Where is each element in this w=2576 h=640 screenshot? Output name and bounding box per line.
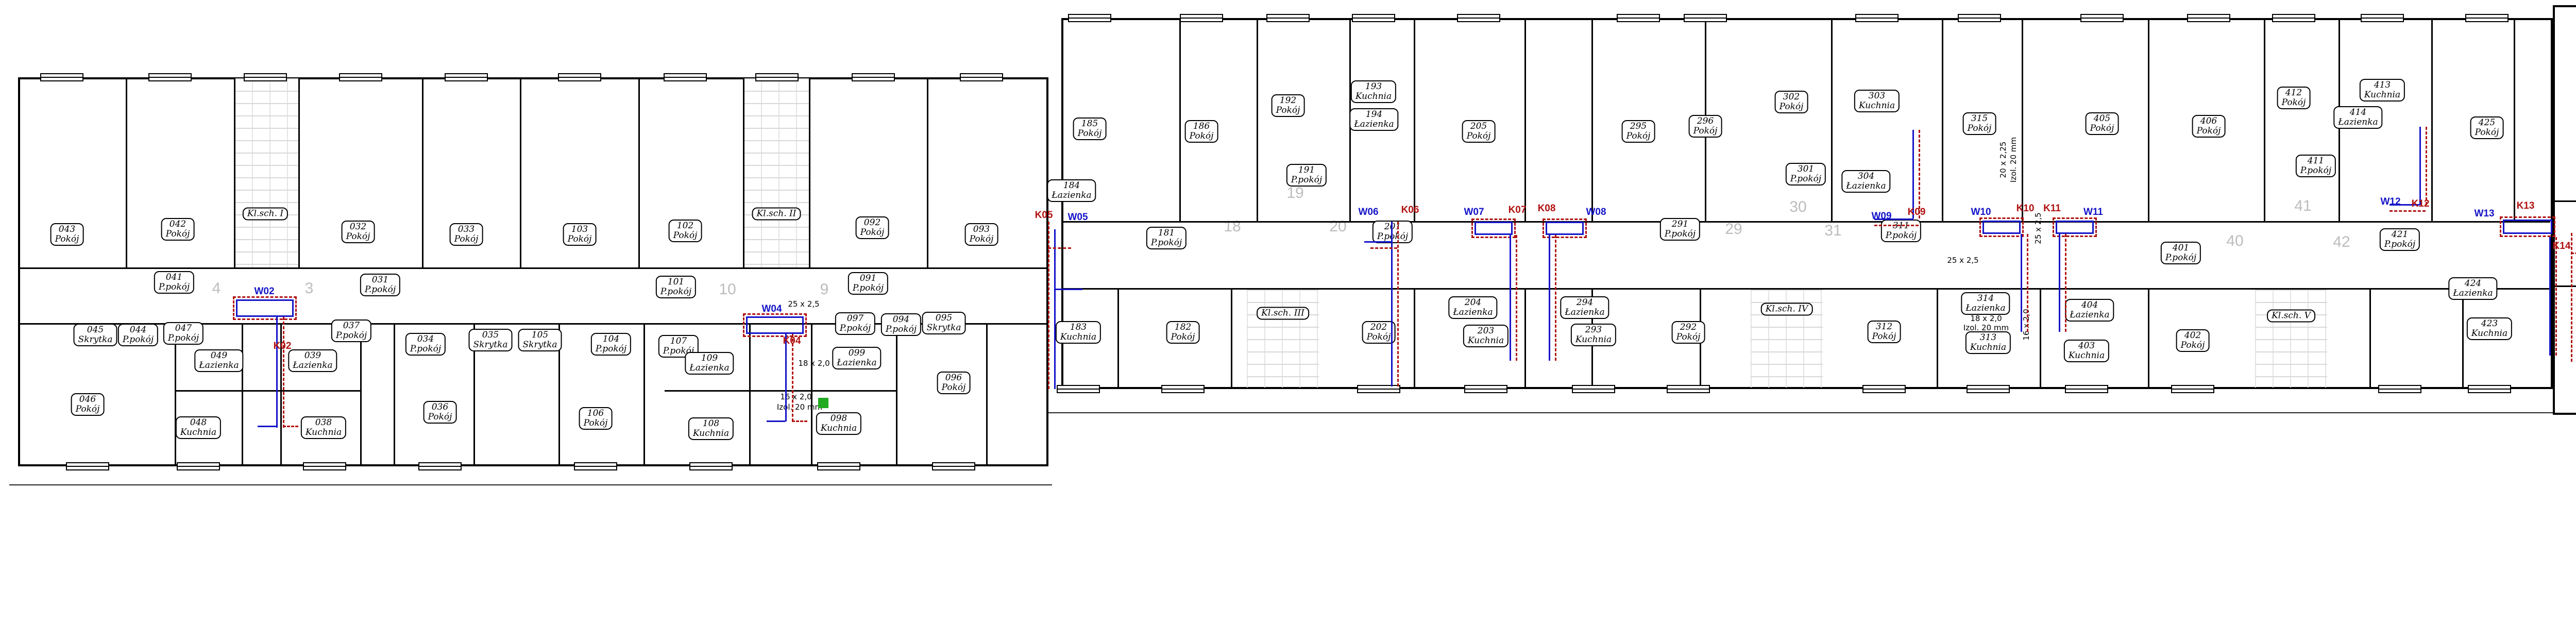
riser-label: K11 — [2043, 203, 2061, 214]
room-number: 403 — [2069, 341, 2105, 351]
stairwell-label: Kl.sch. IV — [1761, 302, 1813, 315]
room-type: Pokój — [970, 234, 994, 244]
floor-plan-drawing: Kl.sch. IKl.sch. IIKl.sch. IIIKl.sch. IV… — [0, 0, 2576, 640]
interior-wall — [927, 77, 928, 268]
interior-wall — [1117, 289, 1119, 389]
room-type: Łazienka — [1052, 191, 1091, 200]
room-label: 293Kuchnia — [1571, 324, 1616, 346]
room-type: Pokój — [76, 405, 100, 414]
window-icon — [1684, 14, 1727, 22]
window-icon — [2065, 385, 2108, 393]
pipe-segment — [1979, 217, 2024, 237]
room-label: 104P.pokój — [591, 333, 631, 356]
pipe-segment — [1510, 235, 1511, 361]
riser-label: K14 — [2553, 241, 2571, 252]
room-type: Pokój — [346, 232, 370, 242]
room-number: 109 — [689, 353, 729, 363]
interior-wall — [749, 324, 751, 466]
interior-wall — [1524, 18, 1526, 222]
room-label: 411P.pokój — [2296, 155, 2336, 177]
room-label: 042Pokój — [161, 218, 195, 241]
riser-label: W04 — [761, 304, 782, 315]
interior-wall — [1937, 289, 1938, 389]
interior-wall — [520, 77, 521, 268]
window-icon — [2468, 385, 2511, 393]
room-label: 303Kuchnia — [1854, 90, 1900, 112]
room-number: 301 — [1790, 164, 1821, 174]
interior-wall — [809, 77, 810, 268]
window-icon — [339, 73, 382, 81]
pipe-segment — [818, 398, 828, 408]
room-label: 181P.pokój — [1146, 227, 1187, 249]
interior-wall — [1831, 18, 1833, 222]
window-icon — [2361, 14, 2404, 22]
room-number: 421 — [2384, 230, 2415, 240]
room-type: Pokój — [673, 231, 698, 241]
room-type: Pokój — [55, 234, 79, 244]
room-type: Pokój — [1872, 332, 1896, 342]
stairwell-label: Kl.sch. II — [752, 207, 801, 220]
riser-label: W07 — [1464, 207, 1484, 218]
pipe-segment — [258, 426, 276, 427]
apartment-number: 31 — [1824, 222, 1841, 240]
room-type: Pokój — [1693, 126, 1718, 136]
room-number: 304 — [1846, 172, 1886, 181]
room-label: 421P.pokój — [2380, 228, 2420, 251]
room-type: Łazienka — [1846, 181, 1886, 191]
room-type: Kuchnia — [2364, 90, 2400, 100]
room-type: Pokój — [584, 418, 608, 428]
room-number: 402 — [2181, 331, 2205, 341]
room-label: 036Pokój — [423, 401, 457, 424]
room-type: Pokój — [1780, 102, 1804, 112]
pipe-segment — [2389, 210, 2426, 212]
room-type: Kuchnia — [2471, 329, 2507, 339]
room-number: 048 — [180, 418, 216, 428]
room-number: 183 — [1060, 323, 1096, 332]
riser-label: W13 — [2474, 208, 2494, 220]
room-type: Pokój — [1171, 332, 1195, 342]
room-number: 193 — [1355, 82, 1392, 92]
room-type: Skrytka — [78, 335, 113, 345]
room-type: Kuchnia — [693, 429, 729, 439]
riser-label: K12 — [2412, 198, 2430, 210]
window-icon — [244, 73, 287, 81]
room-number: 032 — [346, 222, 370, 232]
window-icon — [932, 462, 975, 470]
room-type: Łazienka — [2070, 310, 2109, 320]
window-icon — [755, 73, 799, 81]
window-icon — [960, 73, 1003, 81]
room-label: 184Łazienka — [1047, 179, 1096, 202]
window-icon — [852, 73, 895, 81]
window-icon — [2378, 385, 2421, 393]
room-label: 192Pokój — [1272, 94, 1305, 117]
window-icon — [1266, 14, 1310, 22]
window-icon — [1572, 385, 1615, 393]
interior-wall — [2022, 18, 2023, 222]
window-icon — [1068, 14, 1111, 22]
room-number: 037 — [336, 321, 367, 331]
interior-wall — [2040, 289, 2041, 389]
pipe-segment — [1919, 130, 1920, 218]
pipe-segment — [2059, 234, 2060, 332]
room-label: 182Pokój — [1166, 321, 1200, 344]
room-number: 313 — [1970, 333, 2006, 343]
pipe-segment — [1555, 235, 1556, 361]
room-label: 186Pokój — [1185, 120, 1218, 143]
stairwell-label: Kl.sch. I — [243, 207, 288, 220]
room-number: 049 — [199, 351, 239, 361]
room-number: 107 — [663, 336, 694, 346]
pipe-segment — [746, 316, 804, 334]
room-label: 191P.pokój — [1286, 164, 1327, 187]
riser-label: W12 — [2380, 196, 2400, 208]
apartment-number: 40 — [2226, 232, 2243, 250]
riser-label: W10 — [1971, 207, 1991, 218]
pipe-segment — [792, 334, 793, 422]
room-number: 294 — [1565, 298, 1604, 308]
interior-wall — [1231, 289, 1232, 389]
window-icon — [177, 462, 220, 470]
room-number: 035 — [473, 330, 508, 340]
room-type: Pokój — [2197, 126, 2221, 136]
room-type: Pokój — [860, 228, 885, 238]
riser-label: W06 — [1358, 207, 1378, 218]
interior-wall — [2553, 200, 2576, 202]
window-icon — [2187, 14, 2230, 22]
room-label: 098Kuchnia — [816, 412, 861, 435]
room-type: P.pokój — [123, 335, 154, 345]
window-icon — [148, 73, 192, 81]
room-type: P.pokój — [1291, 175, 1322, 185]
room-label: 314Łazienka — [1961, 292, 2010, 315]
room-label: 185Pokój — [1073, 117, 1107, 140]
pipe-segment — [1397, 222, 1399, 386]
room-number: 315 — [1968, 114, 1992, 124]
pipe-segment — [2549, 237, 2551, 356]
pipe-segment — [1054, 289, 1082, 290]
pipe-segment — [1516, 235, 1517, 361]
ground-line — [1033, 412, 2553, 413]
room-number: 202 — [1367, 323, 1391, 332]
window-icon — [418, 462, 462, 470]
interior-wall — [1591, 18, 1593, 222]
room-type: Pokój — [1276, 106, 1300, 115]
room-number: 043 — [55, 225, 79, 234]
room-label: 414Łazienka — [2333, 106, 2382, 129]
room-number: 414 — [2338, 108, 2378, 117]
room-number: 191 — [1291, 165, 1322, 175]
room-number: 108 — [693, 419, 729, 429]
room-number: 423 — [2471, 319, 2507, 329]
room-label: 041P.pokój — [154, 271, 194, 294]
ground-line — [9, 484, 1052, 485]
room-number: 042 — [166, 220, 190, 229]
room-type: P.pokój — [2165, 253, 2196, 263]
interior-wall — [1414, 289, 1415, 389]
window-icon — [2080, 14, 2124, 22]
room-number: 101 — [660, 277, 691, 287]
riser-label: W09 — [1871, 211, 1891, 222]
stairwell-label: Kl.sch. V — [2267, 309, 2315, 322]
room-type: Pokój — [1676, 332, 1701, 342]
interior-wall — [2462, 289, 2464, 389]
room-type: Łazienka — [1354, 120, 1394, 129]
window-icon — [303, 462, 346, 470]
room-label: 091P.pokój — [848, 272, 888, 295]
pipe-segment — [283, 426, 298, 427]
riser-label: K06 — [1401, 205, 1419, 216]
room-number: 036 — [428, 402, 452, 412]
room-type: Kuchnia — [1575, 335, 1612, 345]
room-number: 093 — [970, 225, 994, 234]
room-type: Łazienka — [2338, 117, 2378, 127]
interior-wall — [298, 77, 300, 268]
room-label: 406Pokój — [2192, 115, 2226, 138]
window-icon — [2171, 385, 2214, 393]
room-type: P.pokój — [2300, 166, 2331, 176]
room-type: P.pokój — [840, 324, 871, 333]
room-number: 182 — [1171, 323, 1195, 332]
room-label: 046Pokój — [71, 393, 105, 416]
room-type: Pokój — [454, 234, 479, 244]
room-type: Łazienka — [1453, 308, 1493, 317]
room-number: 091 — [853, 274, 884, 283]
window-icon — [1967, 385, 2010, 393]
room-type: P.pokój — [1377, 232, 1408, 242]
room-label: 048Kuchnia — [176, 416, 221, 439]
room-label: 103Pokój — [563, 223, 597, 246]
room-label: 296Pokój — [1689, 115, 1722, 138]
room-type: Łazienka — [2453, 289, 2493, 298]
stair-shaft — [2255, 290, 2327, 388]
pipe-segment — [1364, 241, 1391, 243]
room-number: 038 — [306, 418, 342, 428]
room-number: 181 — [1151, 228, 1182, 238]
room-label: 404Łazienka — [2065, 299, 2114, 322]
window-icon — [1862, 385, 1906, 393]
apartment-number: 29 — [1725, 221, 1742, 238]
room-label: 401P.pokój — [2161, 242, 2201, 264]
room-type: P.pokój — [1790, 174, 1821, 184]
room-type: P.pokój — [159, 282, 190, 292]
room-number: 192 — [1276, 96, 1300, 106]
pipe-segment — [276, 317, 278, 428]
room-label: 045Skrytka — [74, 324, 117, 346]
interior-wall — [242, 324, 243, 466]
room-type: Pokój — [2282, 98, 2306, 108]
room-type: Łazienka — [199, 361, 239, 370]
room-label: 108Kuchnia — [688, 417, 734, 440]
room-label: 205Pokój — [1462, 120, 1496, 143]
room-number: 034 — [410, 334, 441, 344]
room-type: P.pokój — [596, 344, 626, 354]
room-type: Pokój — [166, 229, 190, 239]
room-number: 291 — [1665, 220, 1696, 229]
interior-wall — [743, 77, 744, 268]
room-type: Kuchnia — [1859, 101, 1895, 111]
room-number: 424 — [2453, 279, 2493, 289]
room-type: Łazienka — [1965, 304, 2005, 313]
pipe-segment — [236, 299, 294, 317]
interior-wall — [1942, 18, 1943, 222]
room-number: 314 — [1965, 294, 2005, 304]
room-label: 203Kuchnia — [1463, 325, 1509, 347]
apartment-number: 41 — [2294, 197, 2311, 215]
room-label: 202Pokój — [1362, 321, 1396, 344]
room-number: 106 — [584, 409, 608, 418]
room-label: 183Kuchnia — [1056, 321, 1101, 344]
stair-shaft — [234, 78, 299, 268]
interior-wall — [175, 324, 176, 466]
room-label: 405Pokój — [2086, 112, 2119, 135]
room-label: 037P.pokój — [331, 319, 371, 342]
room-type: Kuchnia — [1060, 332, 1096, 342]
window-icon — [574, 462, 617, 470]
interior-wall — [1257, 18, 1258, 222]
room-number: 401 — [2165, 243, 2196, 253]
room-number: 296 — [1693, 116, 1718, 126]
room-number: 293 — [1575, 325, 1612, 335]
interior-wall — [1179, 18, 1181, 222]
interior-wall — [2264, 18, 2265, 222]
room-type: Łazienka — [293, 361, 332, 370]
room-label: 194Łazienka — [1349, 108, 1398, 131]
riser-label: K02 — [274, 341, 292, 352]
room-number: 194 — [1354, 110, 1394, 120]
room-label: 092Pokój — [856, 216, 889, 239]
room-number: 186 — [1190, 122, 1214, 131]
window-icon — [1667, 385, 1710, 393]
room-type: Pokój — [1467, 131, 1491, 141]
room-label: 193Kuchnia — [1351, 80, 1396, 103]
room-label: 109Łazienka — [685, 352, 734, 375]
room-label: 412Pokój — [2277, 87, 2311, 109]
room-type: P.pokój — [1886, 231, 1917, 241]
apartment-number: 42 — [2333, 233, 2350, 251]
dimension-label: 18 x 2,0 — [1970, 314, 2002, 323]
pipe-segment — [2555, 237, 2557, 356]
room-number: 044 — [123, 325, 154, 335]
room-label: 291P.pokój — [1660, 218, 1700, 241]
interior-wall — [394, 324, 395, 466]
room-label: 413Kuchnia — [2360, 79, 2405, 102]
room-label: 315Pokój — [1963, 112, 1996, 135]
stairwell-label: Kl.sch. III — [1257, 307, 1309, 319]
room-label: 313Kuchnia — [1965, 331, 2011, 354]
room-type: Skrytka — [473, 340, 508, 350]
room-type: Kuchnia — [306, 428, 342, 437]
room-type: Pokój — [428, 412, 452, 422]
dimension-label: 25 x 2,5 — [1947, 256, 1978, 265]
room-label: 038Kuchnia — [301, 416, 346, 439]
room-type: Łazienka — [689, 363, 729, 373]
room-number: 185 — [1078, 119, 1102, 129]
room-number: 184 — [1052, 181, 1091, 191]
interior-wall — [1061, 288, 2550, 290]
room-number: 047 — [168, 324, 199, 333]
room-type: Pokój — [1367, 332, 1391, 342]
room-label: 302Pokój — [1775, 91, 1808, 113]
room-type: P.pokój — [365, 285, 396, 295]
room-label: 311P.pokój — [1881, 220, 1921, 242]
room-number: 045 — [78, 325, 113, 335]
apartment-number: 3 — [305, 280, 314, 297]
room-label: 034P.pokój — [405, 333, 446, 356]
riser-label: K13 — [2517, 200, 2535, 212]
room-number: 039 — [293, 351, 332, 361]
room-number: 406 — [2197, 116, 2221, 126]
interior-wall — [2369, 289, 2371, 389]
room-label: 105Skrytka — [518, 329, 562, 351]
interior-wall — [665, 390, 896, 392]
room-number: 292 — [1676, 323, 1701, 332]
riser-label: K10 — [2016, 203, 2035, 214]
room-number: 031 — [365, 275, 396, 285]
room-type: Kuchnia — [180, 428, 216, 437]
interior-wall — [1061, 221, 2550, 223]
room-number: 098 — [821, 414, 857, 424]
interior-wall — [638, 77, 640, 268]
room-number: 205 — [1467, 122, 1491, 131]
interior-wall — [2148, 289, 2149, 389]
room-label: 402Pokój — [2176, 329, 2210, 352]
room-number: 411 — [2300, 156, 2331, 166]
interior-wall — [2514, 18, 2515, 222]
apartment-number: 10 — [719, 281, 736, 298]
room-type: P.pokój — [336, 331, 367, 341]
window-icon — [558, 73, 601, 81]
window-icon — [689, 462, 733, 470]
window-icon — [1617, 14, 1660, 22]
pipe-segment — [1391, 222, 1393, 386]
window-icon — [1855, 14, 1899, 22]
interior-wall — [360, 324, 362, 466]
window-icon — [1958, 14, 2001, 22]
room-number: 033 — [454, 225, 479, 234]
room-type: Kuchnia — [1468, 336, 1504, 346]
room-number: 295 — [1626, 122, 1651, 131]
room-number: 303 — [1859, 91, 1895, 101]
room-number: 204 — [1453, 298, 1493, 308]
room-number: 201 — [1377, 222, 1408, 232]
room-type: Pokój — [2475, 128, 2499, 138]
dimension-label: 25 x 2,5 — [788, 299, 819, 309]
room-type: Skrytka — [927, 323, 961, 333]
room-type: Kuchnia — [1970, 343, 2006, 352]
room-label: 403Kuchnia — [2064, 340, 2109, 362]
room-type: P.pokój — [853, 283, 884, 293]
window-icon — [40, 73, 83, 81]
pipe-segment — [2027, 234, 2028, 332]
room-number: 404 — [2070, 300, 2109, 310]
room-label: 095Skrytka — [922, 312, 966, 334]
pipe-segment — [1054, 229, 1056, 389]
room-type: Pokój — [2090, 124, 2114, 133]
riser-label: K04 — [783, 335, 801, 347]
room-type: Kuchnia — [1355, 92, 1392, 102]
pipe-segment — [1370, 247, 1397, 249]
room-label: 295Pokój — [1622, 120, 1655, 143]
room-number: 425 — [2475, 118, 2499, 128]
room-number: 097 — [840, 314, 871, 324]
pipe-segment — [1549, 235, 1550, 361]
room-label: 049Łazienka — [194, 349, 243, 372]
interior-wall — [422, 77, 423, 268]
riser-label: W08 — [1586, 207, 1606, 218]
pipe-segment — [2419, 127, 2421, 205]
